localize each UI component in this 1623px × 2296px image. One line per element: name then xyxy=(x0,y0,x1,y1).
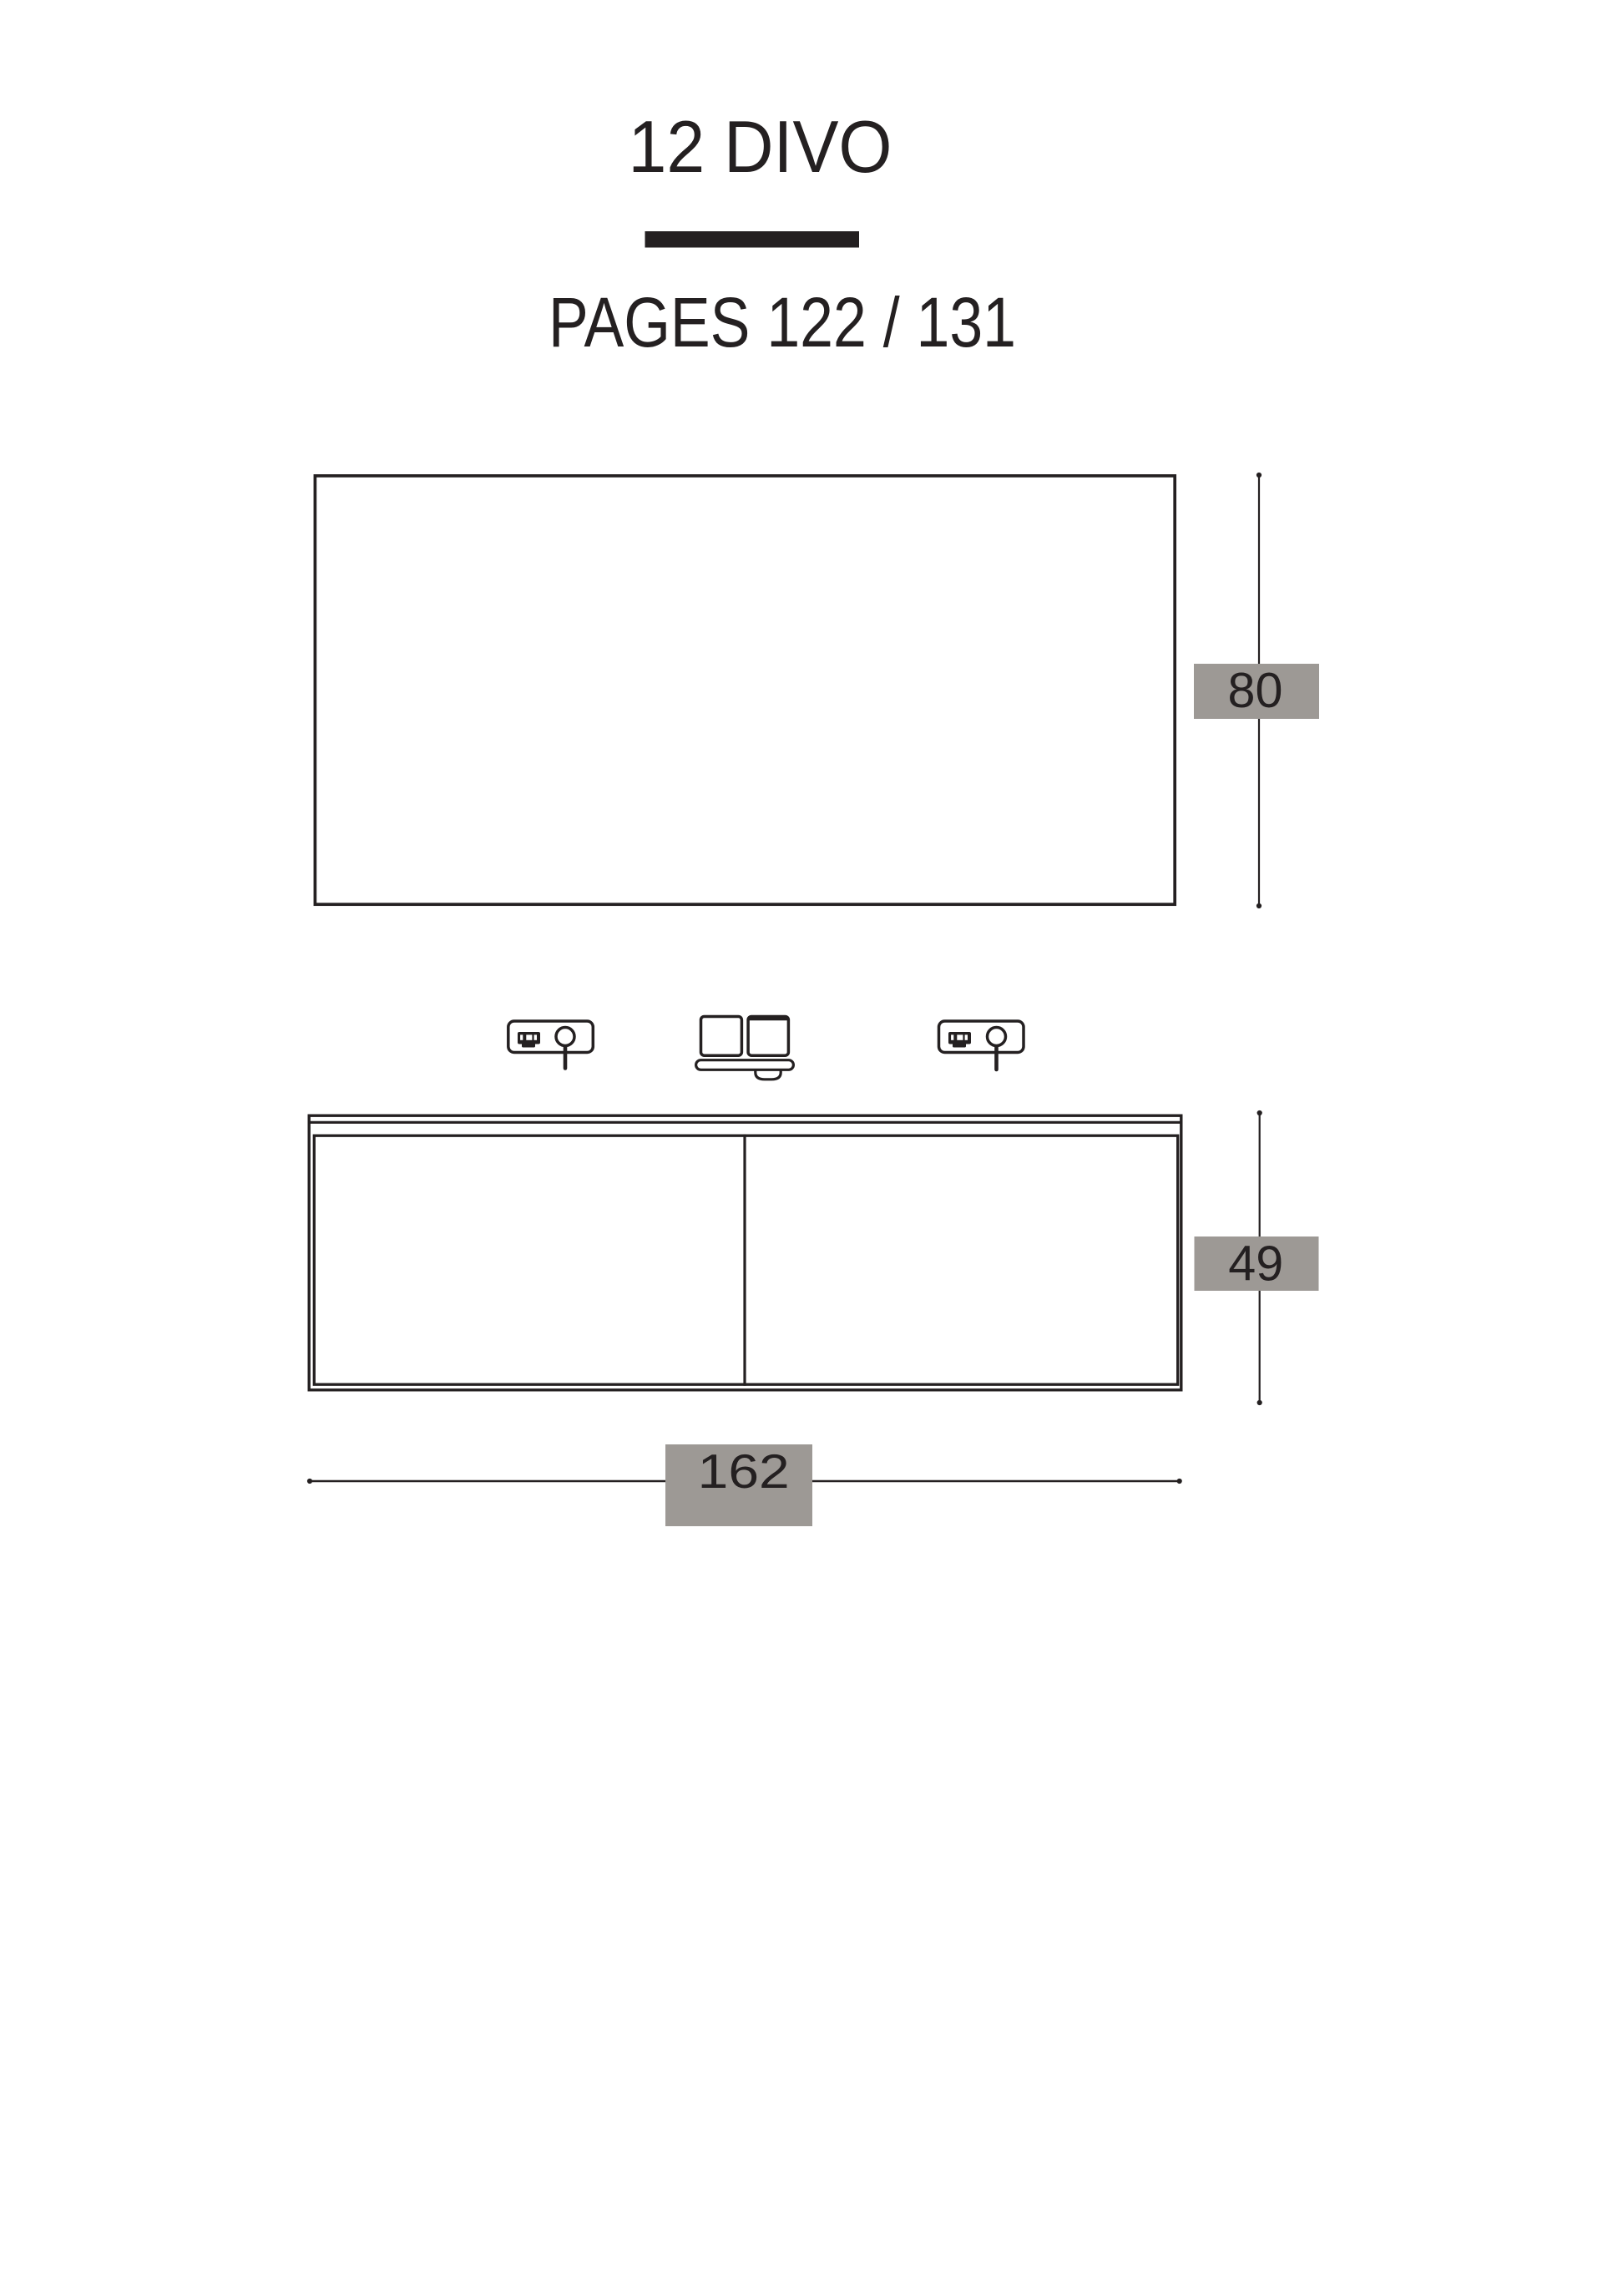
svg-text:80: 80 xyxy=(1228,663,1283,718)
svg-text:49: 49 xyxy=(1228,1237,1283,1292)
svg-text:PAGES 122 / 131: PAGES 122 / 131 xyxy=(549,283,1016,362)
svg-text:162: 162 xyxy=(698,1445,790,1499)
svg-text:12 DIVO: 12 DIVO xyxy=(629,105,892,188)
